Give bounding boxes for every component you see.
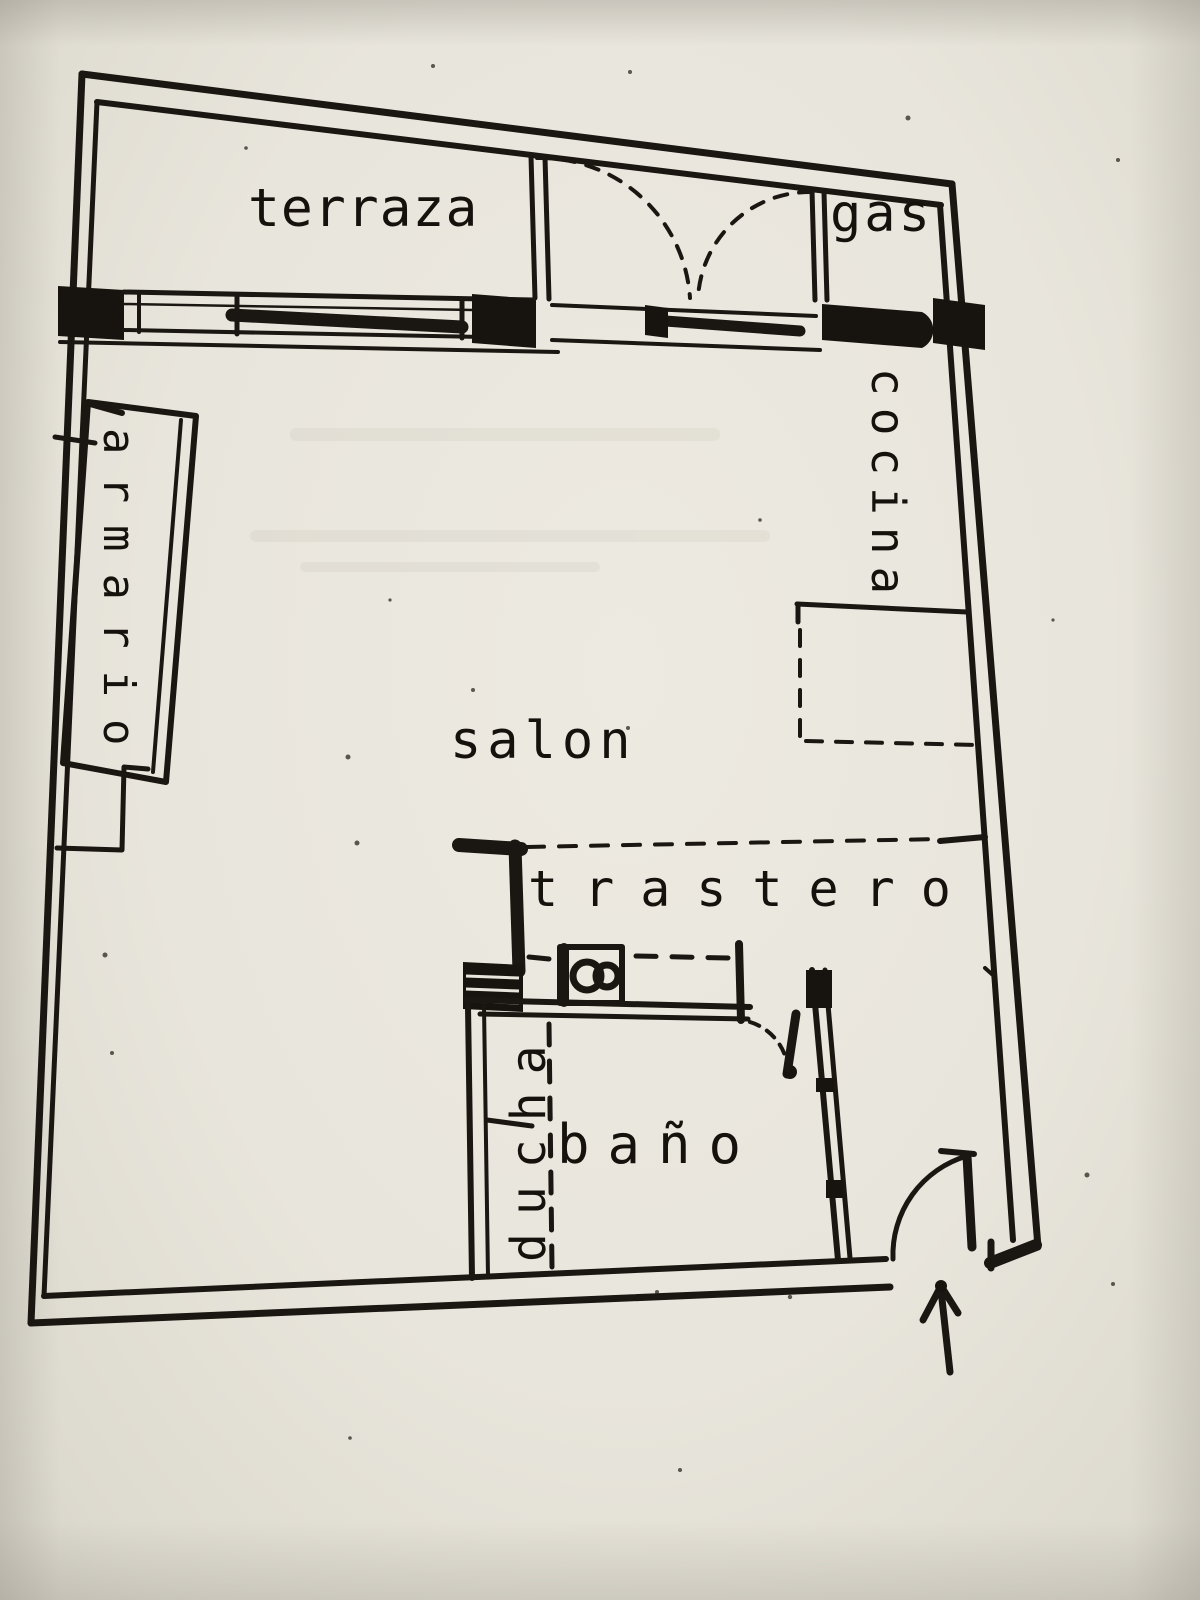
room-label-armario: armario — [93, 428, 144, 767]
window-pier-middle — [472, 294, 536, 348]
kitchen-counter — [797, 604, 978, 745]
wall-rounded-end — [822, 304, 933, 348]
wall-corner-block — [933, 298, 985, 350]
window-glazing-bar — [232, 315, 462, 327]
gas-partition-wall — [812, 190, 827, 300]
room-label-salon: salon — [450, 711, 637, 771]
bathroom-door — [750, 1014, 797, 1079]
exterior-wall-left — [31, 74, 97, 1323]
door-swing-arc-right — [698, 192, 812, 298]
room-label-bano: baño — [557, 1113, 759, 1176]
entrance-door — [893, 1151, 974, 1259]
terrace-door-left-leaf — [531, 156, 549, 299]
room-label-gas: gas — [830, 184, 933, 244]
wall-step-below-armario — [57, 767, 148, 850]
terrace-window-band — [58, 286, 985, 352]
bathroom-wall-corner-block — [806, 970, 832, 1008]
room-label-terraza: terraza — [248, 178, 478, 239]
window-pier-left — [58, 286, 124, 340]
room-label-cocina: cocina — [861, 368, 915, 606]
door-swing-arc-left — [537, 158, 690, 298]
washing-machine-symbol — [560, 947, 622, 1003]
bathroom-door-swing-arc — [750, 1022, 788, 1070]
kitchen-counter-dashed-front — [806, 741, 978, 745]
entrance-door-leaf — [967, 1156, 972, 1247]
exterior-wall-top — [82, 74, 952, 205]
exterior-wall-bottom — [31, 1259, 890, 1323]
bleed-through-smudges — [250, 428, 770, 572]
entrance-arrow-icon — [923, 1280, 958, 1372]
terrace-door-swing-arcs — [537, 158, 812, 298]
entrance-jamb-wall — [990, 1242, 1036, 1268]
entrance-door-arc — [893, 1156, 967, 1259]
scanned-floor-plan-page: terraza gas cocina armario salon traster… — [0, 0, 1200, 1600]
floor-plan-drawing: terraza gas cocina armario salon traster… — [0, 0, 1200, 1600]
room-label-trastero: trastero — [528, 860, 977, 918]
hatched-wall-block — [463, 962, 523, 1012]
room-label-ducha: ducha — [501, 1028, 557, 1263]
